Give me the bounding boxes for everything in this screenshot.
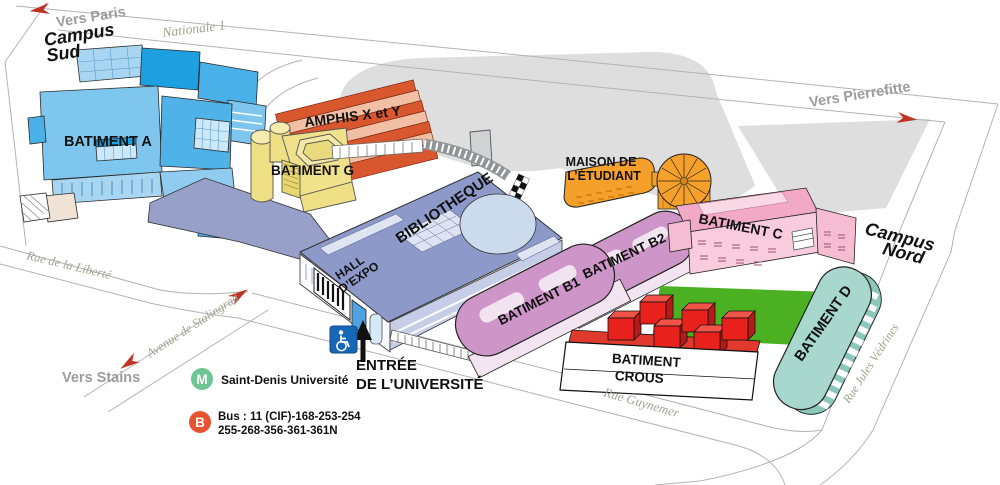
bib-dome [460,194,536,254]
vers-pierrefitte-label: Vers Pierrefitte [808,79,912,111]
svg-text:ENTRÉE: ENTRÉE [356,357,417,374]
bus-lines-label-2: 255-268-356-361-361N [218,425,338,437]
svg-text:L’ÉTUDIANT: L’ÉTUDIANT [567,168,641,183]
avenue-stalingrad-label: Avenue de Stalingrad [143,290,242,361]
entrance-label: ENTRÉE DE L’UNIVERSITÉ [356,357,484,393]
svg-text:MAISON DE: MAISON DE [566,155,637,169]
a-dark-slab [140,48,200,90]
a-left-notch [28,116,46,144]
arrow-vers-paris [29,3,50,16]
transit-legend: M Saint-Denis Université B Bus : 11 (CIF… [189,368,361,437]
maison-etudiant-label: MAISON DE L’ÉTUDIANT [566,155,642,183]
a-main-block [40,86,162,180]
g-cylinder-2-top [270,122,290,134]
svg-text:CROUS: CROUS [614,368,664,386]
entrance-cylinder [370,314,382,344]
rue-liberte-label: Rue de la Liberté [24,248,113,282]
batiment-g-label: BATIMENT G [271,163,354,178]
boundary-right-outer [951,104,998,252]
a-entrance-canopy [20,193,50,222]
vers-stains-label: Vers Stains [62,370,140,386]
accessibility-sign [330,326,357,353]
bus-lines-label-1: Bus : 11 (CIF)-168-253-254 [218,411,361,423]
svg-text:Sud: Sud [45,41,83,66]
entrance-marker [330,320,372,362]
c-right-annex [816,208,856,264]
metro-station-label: Saint-Denis Université [221,373,349,387]
a-mid-grid [194,118,230,152]
c-left-annex [668,220,692,252]
campus-nord-label: Campus Nord [859,218,936,269]
metro-letter: M [196,372,207,387]
rotunda-hub [681,178,688,185]
batiment-a-label: BATIMENT A [64,134,152,150]
a-back-grid-roof [76,45,146,82]
campus-map: Vers Paris Nationale 1 Campus Sud BATIME… [0,0,1000,485]
bus-letter: B [195,415,205,430]
svg-text:DE L’UNIVERSITÉ: DE L’UNIVERSITÉ [356,376,484,393]
